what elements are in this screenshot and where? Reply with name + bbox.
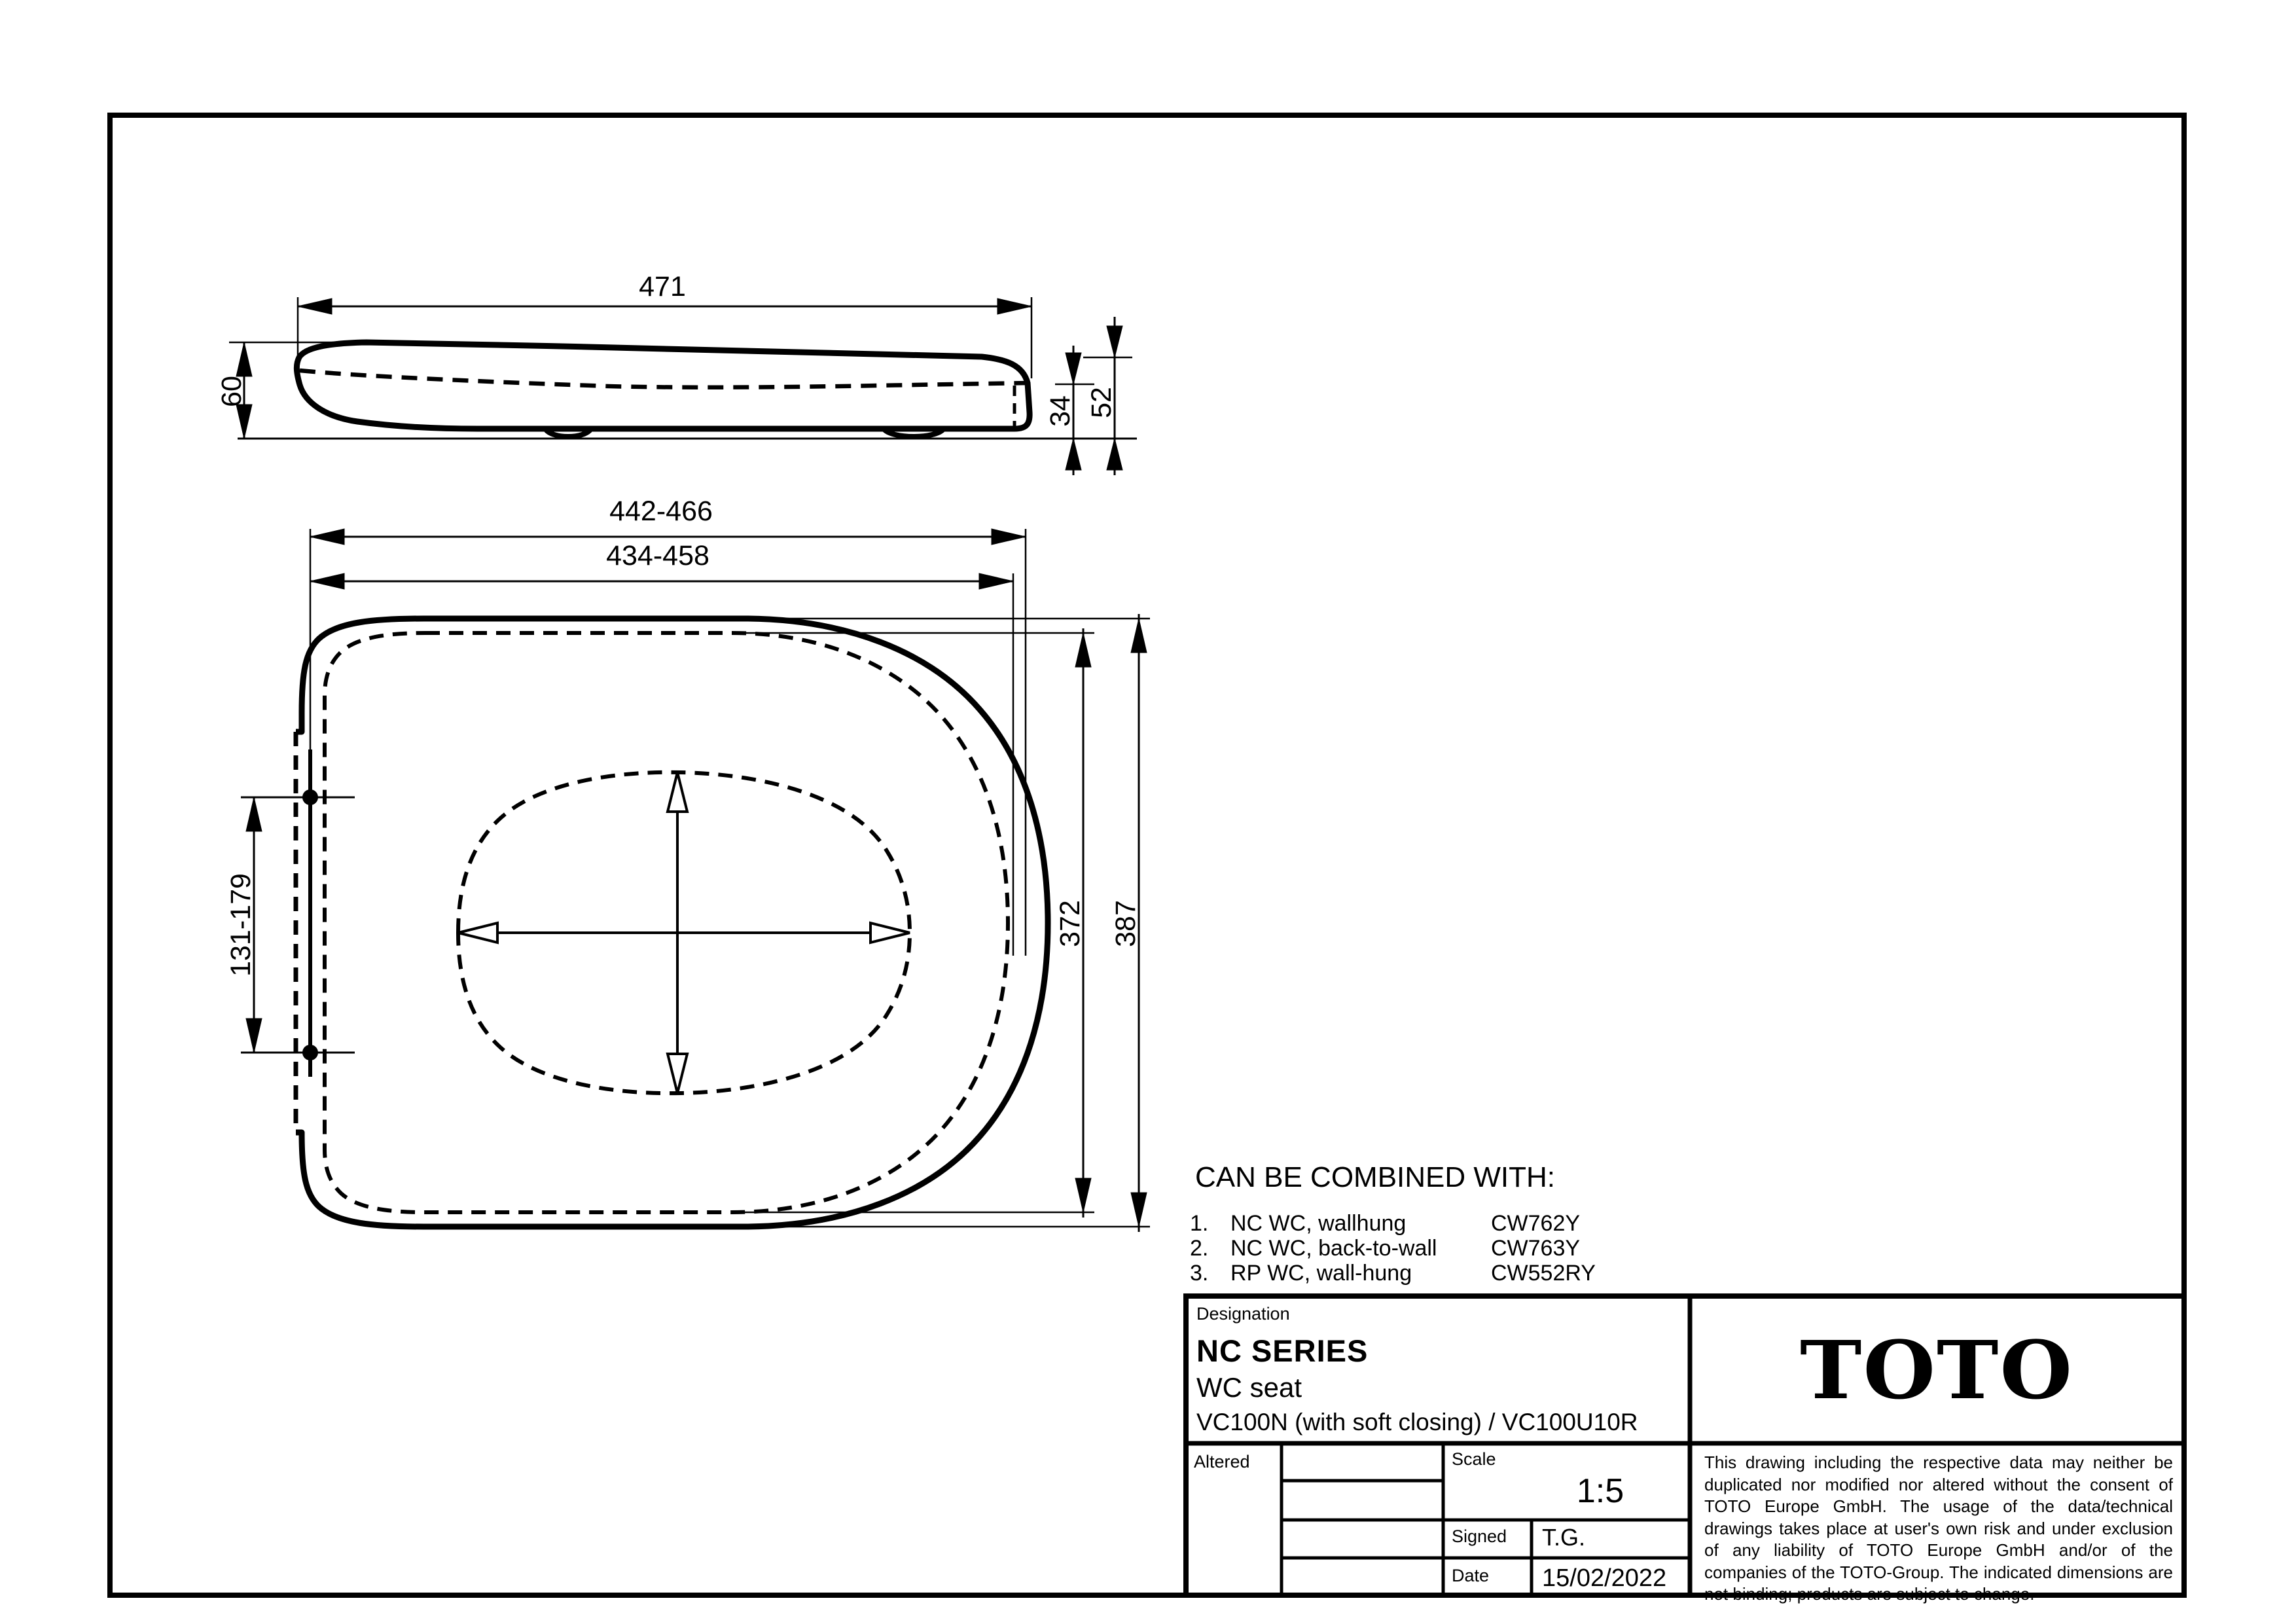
arrow-bottom — [236, 405, 252, 439]
scale-value: 1:5 — [1525, 1471, 1676, 1511]
dim-side-rear-height: 52 — [1083, 317, 1132, 475]
designation-label: Designation — [1196, 1304, 1290, 1324]
top-view-seat-ring-hidden — [325, 633, 1008, 1212]
date-value: 15/02/2022 — [1542, 1564, 1666, 1593]
dim-top-length-inner: 434-458 — [310, 540, 1013, 956]
combined-item-label: NC WC, back-to-wall — [1230, 1237, 1491, 1259]
dim-label-length-outer: 442-466 — [609, 496, 713, 527]
arrow-bottom — [1066, 439, 1081, 470]
dim-label-seat-height: 34 — [1045, 395, 1076, 427]
combined-item-3: 3. RP WC, wall-hung CW552RY — [1190, 1262, 1596, 1284]
combined-item-number: 3. — [1190, 1262, 1230, 1284]
top-view-dimensions: 442-466 434-458 131-179 — [225, 496, 1150, 1232]
dim-ext-lines — [298, 297, 1031, 378]
arrow-right — [997, 298, 1031, 314]
arrow-bottom — [1075, 1178, 1091, 1212]
combined-item-number: 1. — [1190, 1212, 1230, 1235]
opening-center-cross — [458, 772, 910, 1093]
dim-label-hinge-span: 131-179 — [225, 873, 257, 977]
dim-label-width-outer: 387 — [1110, 900, 1141, 947]
dim-ext-lines — [743, 633, 1094, 1212]
arrow-top — [1075, 633, 1091, 667]
scale-label: Scale — [1452, 1449, 1496, 1470]
combined-item-code: CW552RY — [1491, 1262, 1596, 1284]
combined-item-label: RP WC, wall-hung — [1230, 1262, 1491, 1284]
dim-top-width-inner: 372 — [743, 628, 1094, 1218]
combined-item-2: 2. NC WC, back-to-wall CW763Y — [1190, 1237, 1580, 1259]
variant-codes: VC100N (with soft closing) / VC100U10R — [1196, 1409, 1638, 1436]
arrow-top — [1066, 353, 1081, 384]
dim-ext-lines — [746, 619, 1150, 1227]
side-view-lid-split-hidden-line — [300, 370, 1031, 388]
cross-arrow-up — [668, 772, 687, 812]
side-view — [296, 342, 1031, 437]
arrow-top — [1131, 619, 1147, 653]
signed-value: T.G. — [1542, 1524, 1585, 1551]
arrow-top — [236, 342, 252, 376]
dim-side-length: 471 — [298, 271, 1031, 378]
arrow-top — [246, 797, 262, 831]
combined-item-label: NC WC, wallhung — [1230, 1212, 1491, 1235]
toto-logo: TOTO — [1800, 1323, 2073, 1417]
series-title: NC SERIES — [1196, 1333, 1368, 1369]
dim-label-length: 471 — [639, 271, 686, 302]
dim-label-width-inner: 372 — [1054, 900, 1086, 947]
drawing-sheet: 471 60 34 — [0, 0, 2296, 1624]
combined-with-title: CAN BE COMBINED WITH: — [1195, 1161, 1555, 1194]
arrow-right — [979, 573, 1013, 589]
dim-label-length-inner: 434-458 — [606, 540, 709, 571]
product-title: WC seat — [1196, 1372, 1302, 1403]
arrow-left — [298, 298, 332, 314]
combined-item-1: 1. NC WC, wallhung CW762Y — [1190, 1212, 1580, 1235]
brand-cell: TOTO — [1690, 1296, 2184, 1443]
arrow-bottom — [246, 1019, 262, 1053]
arrow-left — [310, 529, 344, 545]
dim-hinge-span: 131-179 — [225, 797, 262, 1053]
legal-disclaimer: This drawing including the respective da… — [1704, 1452, 2173, 1606]
combined-item-code: CW762Y — [1491, 1212, 1580, 1235]
arrow-right — [992, 529, 1026, 545]
date-label: Date — [1452, 1566, 1489, 1586]
arrow-bottom — [1131, 1193, 1147, 1227]
dim-label-height: 60 — [216, 376, 247, 407]
signed-label: Signed — [1452, 1526, 1507, 1547]
arrow-bottom — [1107, 439, 1122, 470]
dim-top-width-outer: 387 — [746, 614, 1150, 1232]
arrow-top — [1107, 326, 1122, 357]
dim-label-rear-height: 52 — [1086, 387, 1117, 418]
cross-arrow-right — [870, 923, 910, 943]
arrow-left — [310, 573, 344, 589]
cross-arrow-down — [668, 1054, 687, 1093]
cross-arrow-left — [458, 923, 497, 943]
altered-label: Altered — [1194, 1452, 1250, 1472]
combined-item-number: 2. — [1190, 1237, 1230, 1259]
combined-item-code: CW763Y — [1491, 1237, 1580, 1259]
